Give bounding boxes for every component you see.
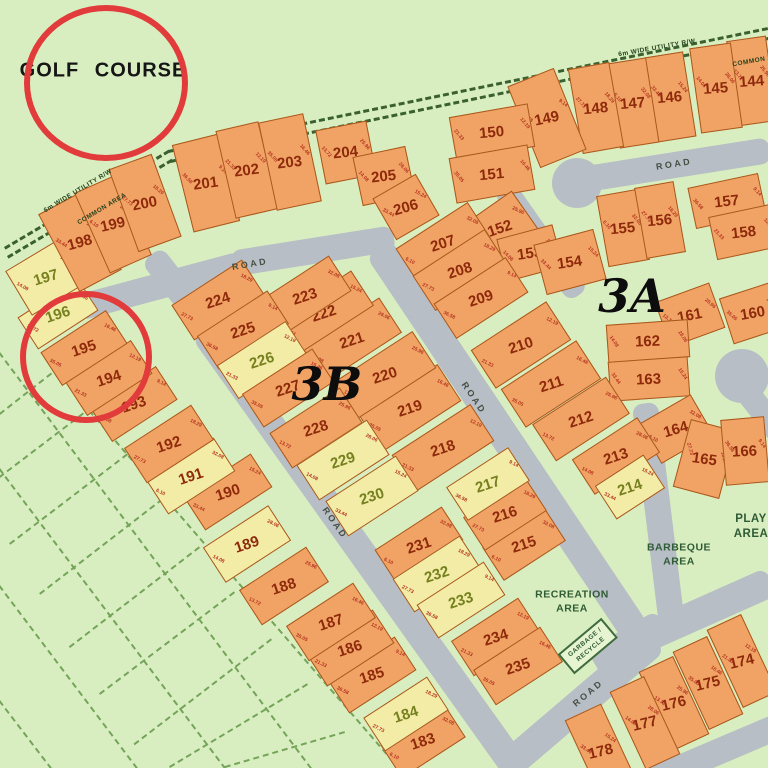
lot-dimension: 21.33 (712, 229, 724, 242)
lot-number: 162 (635, 333, 661, 349)
lot-dimension: 21.33 (452, 129, 464, 142)
recreation-area-line1: RECREATION (535, 588, 609, 602)
lot-number: 211 (537, 373, 565, 395)
lot-dimension: 21.33 (224, 159, 236, 172)
culdesac-bulb (715, 349, 768, 403)
lot-number: 147 (620, 94, 646, 111)
lot-dimension: 18.29 (189, 419, 202, 429)
lot-dimension: 28.06 (266, 519, 279, 529)
lot-number: 230 (358, 485, 386, 507)
lot-number: 223 (291, 285, 319, 307)
lot-dimension: 25.96 (359, 138, 371, 151)
lot-dimension: 9.14 (757, 439, 767, 450)
lot-dimension: 35.05 (250, 401, 263, 411)
lot-number: 163 (636, 371, 662, 387)
lot-number: 149 (533, 108, 561, 128)
lot-number: 203 (277, 153, 304, 171)
future-lot-dash (224, 731, 345, 768)
lot-number: 198 (66, 231, 94, 252)
lot-dimension: 12.19 (519, 117, 531, 130)
lot-number: 157 (714, 192, 741, 210)
lot-dimension: 36.58 (205, 343, 218, 353)
plat-map: 14413.7225.9614514.0828.0614633.4415.241… (0, 0, 768, 768)
lot-dimension: 16.46 (351, 597, 364, 607)
lot-number: 224 (204, 289, 232, 311)
lot-dimension: 25.96 (704, 298, 717, 310)
lot-dimension: 13.72 (278, 440, 291, 450)
lot-dimension: 12.19 (469, 419, 482, 429)
lot-number: 188 (270, 575, 298, 597)
lot-number: 192 (155, 433, 183, 455)
lot-dimension: 16.46 (575, 355, 588, 365)
lot-dimension: 13.72 (248, 597, 261, 607)
lot-dimension: 25.96 (605, 391, 618, 401)
lot-dimension: 25.96 (512, 206, 525, 216)
lot-number: 146 (657, 88, 683, 105)
lot-number: 166 (732, 443, 758, 459)
section-label-3a: 3A (598, 269, 666, 323)
lot-dimension: 16.46 (519, 159, 531, 172)
barbeque-area-label: BARBEQUE AREA (647, 541, 711, 568)
lot-number: 228 (302, 417, 330, 439)
lot-166: 16636.589.14 (720, 416, 768, 486)
lot-number: 208 (446, 259, 474, 281)
lot-dimension: 12.19 (545, 316, 558, 326)
lot-dimension: 15.24 (248, 467, 261, 477)
lot-number: 210 (507, 334, 535, 356)
lot-number: 231 (405, 534, 433, 556)
lot-dimension: 9.14 (268, 304, 279, 313)
lot-number: 189 (233, 533, 261, 555)
lot-number: 226 (248, 349, 276, 371)
lot-dimension: 33.44 (603, 493, 616, 503)
lot-dimension: 28.06 (377, 311, 390, 321)
culdesac-bulb (552, 158, 602, 208)
lot-dimension: 32.08 (327, 270, 340, 280)
lot-dimension: 13.72 (320, 146, 332, 159)
lot-dimension: 35.05 (510, 398, 523, 408)
lot-dimension: 35.05 (266, 151, 278, 164)
lot-dimension: 35.05 (482, 677, 495, 687)
lot-dimension: 28.06 (365, 434, 378, 444)
lot-dimension: 27.73 (574, 97, 586, 110)
lot-dimension: 14.08 (357, 171, 369, 184)
lot-number: 215 (510, 533, 538, 555)
lot-dimension: 15.24 (394, 470, 407, 480)
red-circle-annotation (20, 291, 152, 423)
lot-dimension: 16.46 (538, 641, 551, 651)
lot-dimension: 27.73 (685, 442, 693, 455)
future-lot-dash (0, 468, 226, 768)
lot-number: 232 (423, 563, 451, 585)
lot-number: 155 (610, 219, 636, 236)
future-lot-dash (134, 638, 272, 745)
lot-number: 158 (731, 223, 758, 241)
lot-number: 205 (371, 167, 398, 185)
lot-dimension: 21.33 (460, 648, 473, 658)
lot-dimension: 9.14 (508, 460, 519, 469)
lot-number: 150 (479, 123, 505, 140)
lot-dimension: 12.19 (283, 334, 296, 344)
lot-dimension: 32.08 (211, 451, 224, 461)
lot-dimension: 27.73 (401, 586, 414, 596)
lot-dimension: 28.06 (398, 162, 410, 175)
lot-dimension: 27.73 (133, 455, 146, 465)
lot-number: 234 (482, 626, 510, 648)
lot-dimension: 27.73 (471, 524, 484, 534)
lot-number: 151 (479, 165, 505, 182)
future-lot-dash (169, 683, 308, 768)
future-lot-dash (0, 585, 138, 768)
lot-dimension: 21.33 (314, 660, 327, 670)
recreation-area-line2: AREA (535, 602, 609, 616)
lot-dimension: 28.06 (635, 431, 648, 441)
lot-160: 16035.0516.46 (718, 282, 768, 345)
lot-dimension: 35.05 (725, 311, 738, 323)
lot-dimension: 27.73 (421, 283, 434, 293)
lot-number: 220 (371, 364, 399, 386)
lot-dimension: 16.46 (436, 379, 449, 389)
lot-dimension: 21.33 (480, 359, 493, 369)
future-lot-dash (0, 700, 52, 768)
lot-number: 229 (329, 449, 357, 471)
lot-dimension: 14.08 (212, 555, 225, 565)
lot-number: 184 (392, 703, 420, 725)
lot-number: 219 (396, 397, 424, 419)
lot-number: 190 (214, 481, 242, 503)
lot-dimension: 14.08 (15, 282, 28, 292)
play-area-line2: AREA (734, 527, 768, 542)
lot-dimension: 9.14 (484, 575, 495, 584)
lot-dimension: 15.24 (677, 368, 688, 381)
lot-number: 154 (557, 253, 584, 271)
lot-dimension: 21.33 (225, 372, 238, 382)
lot-number: 206 (392, 196, 420, 217)
lot-dimension: 6.10 (155, 489, 166, 498)
lot-number: 213 (602, 445, 630, 467)
lot-number: 148 (583, 99, 609, 116)
lot-number: 187 (317, 611, 345, 633)
lot-dimension: 18.29 (425, 690, 438, 700)
lot-dimension: 28.06 (677, 330, 688, 343)
lot-dimension: 36.58 (454, 494, 467, 504)
lot-number: 233 (447, 589, 475, 611)
section-label-3b: 3B (292, 357, 363, 411)
lot-dimension: 33.44 (539, 259, 551, 271)
lot-dimension: 32.08 (442, 717, 455, 727)
lot-dimension: 18.29 (483, 243, 496, 253)
lot-number: 160 (738, 303, 765, 322)
lot-dimension: 6.10 (88, 219, 99, 229)
lot-dimension: 36.58 (336, 687, 349, 697)
lot-number: 217 (474, 473, 502, 495)
lot-dimension: 15.24 (641, 468, 654, 478)
lot-number: 218 (429, 437, 457, 459)
lot-number: 212 (567, 408, 595, 430)
lot-dimension: 35.05 (452, 171, 464, 184)
lot-dimension: 9.14 (557, 98, 568, 108)
recreation-area-label: RECREATION AREA (535, 588, 609, 615)
lot-dimension: 14.08 (608, 335, 619, 348)
lot-number: 199 (99, 214, 127, 234)
lot-dimension: 9.14 (395, 650, 406, 659)
lot-dimension: 9.14 (506, 271, 517, 280)
lot-number: 214 (616, 476, 644, 498)
lot-dimension: 6.10 (389, 753, 400, 762)
lot-dimension: 36.58 (691, 199, 703, 212)
lot-number: 185 (358, 664, 386, 686)
lot-dimension: 9.14 (156, 379, 167, 388)
lot-dimension: 6.10 (383, 558, 394, 567)
play-area-line1: PLAY (734, 512, 768, 527)
lot-dimension: 14.08 (581, 467, 594, 477)
lot-dimension: 14.08 (305, 472, 318, 482)
lot-dimension: 12.19 (763, 218, 768, 231)
lot-dimension: 32.08 (466, 216, 479, 226)
red-circle-annotation (24, 5, 188, 161)
lot-number: 144 (739, 73, 765, 90)
lot-dimension: 18.29 (457, 549, 470, 559)
lot-number: 201 (193, 174, 220, 192)
lot-dimension: 27.73 (372, 724, 385, 734)
lot-number: 209 (467, 287, 495, 309)
lot-dimension: 27.73 (180, 312, 193, 322)
lot-dimension: 6.10 (490, 555, 501, 564)
lot-dimension: 9.14 (752, 187, 762, 198)
lot-dimension: 13.72 (541, 432, 554, 442)
lot-number: 145 (703, 80, 729, 97)
lot-number: 225 (229, 319, 257, 341)
lot-dimension: 25.96 (304, 561, 317, 571)
play-area-label: PLAY AREA (734, 512, 768, 542)
lot-dimension: 18.29 (240, 274, 253, 284)
lot-163: 16333.4415.24 (608, 356, 691, 401)
lot-number: 235 (504, 655, 532, 677)
lot-dimension: 33.44 (192, 504, 205, 514)
lot-dimension: 6.10 (404, 257, 415, 266)
lot-dimension: 32.08 (439, 520, 452, 530)
lot-dimension: 12.19 (516, 612, 529, 622)
lot-number: 202 (234, 161, 261, 179)
lot-dimension: 12.19 (370, 623, 383, 633)
lot-number: 200 (131, 193, 158, 213)
lot-dimension: 25.96 (411, 346, 424, 356)
barbeque-area-line1: BARBEQUE (647, 541, 711, 555)
lot-number: 197 (32, 266, 60, 288)
lot-number: 165 (692, 450, 719, 468)
lot-dimension: 36.58 (425, 612, 438, 622)
barbeque-area-line2: AREA (647, 555, 711, 569)
lot-dimension: 32.08 (542, 520, 555, 530)
lot-number: 191 (177, 465, 205, 487)
lot-dimension: 35.05 (295, 633, 308, 643)
lot-number: 221 (338, 329, 366, 351)
lot-dimension: 36.58 (181, 173, 193, 185)
lot-dimension: 14.08 (695, 76, 707, 89)
lot-number: 216 (491, 503, 519, 525)
lot-dimension: 36.58 (442, 311, 455, 321)
lot-dimension: 18.29 (523, 490, 536, 500)
lot-dimension: 15.24 (587, 246, 599, 258)
